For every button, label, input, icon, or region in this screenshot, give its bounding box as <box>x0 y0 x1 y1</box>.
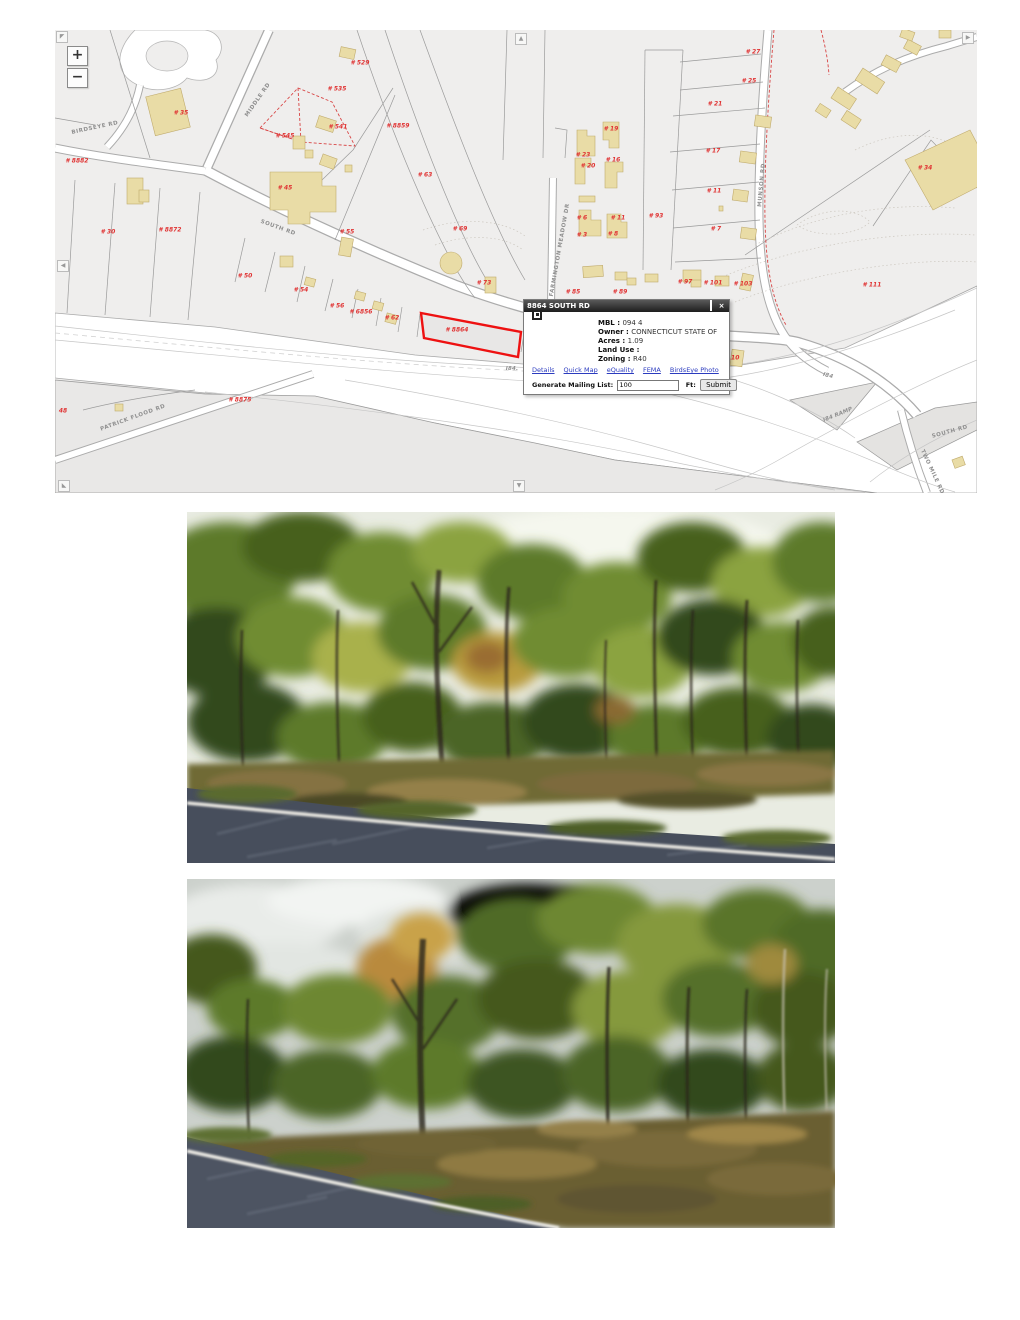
field-label: Land Use : <box>598 346 639 354</box>
pan-right-icon[interactable]: ▶ <box>962 32 974 44</box>
parcel-info-popup: 8864 SOUTH RD × MBL : 094 4 Owner : CONN… <box>523 299 730 395</box>
quick-map-link[interactable]: Quick Map <box>564 366 598 374</box>
details-link[interactable]: Details <box>532 366 555 374</box>
field-label: MBL : <box>598 319 622 327</box>
mailing-list-label: Generate Mailing List: <box>532 381 613 389</box>
pan-top-left-icon[interactable]: ◤ <box>56 31 68 43</box>
parcel-info: MBL : 094 4 Owner : CONNECTICUT STATE OF… <box>598 319 717 364</box>
birdseye-photo-link[interactable]: BirdsEye Photo <box>670 366 719 374</box>
pan-up-icon[interactable]: ▲ <box>515 33 527 45</box>
street-view-photo-bottom <box>187 879 835 1228</box>
popup-links: DetailsQuick MapeQualityFEMABirdsEye Pho… <box>532 366 728 374</box>
submit-button[interactable]: Submit <box>700 379 737 391</box>
field-value: CONNECTICUT STATE OF <box>631 328 717 336</box>
popup-title-bar[interactable]: 8864 SOUTH RD × <box>524 300 729 312</box>
marker-toggle-icon[interactable] <box>532 310 542 320</box>
fema-link[interactable]: FEMA <box>643 366 661 374</box>
field-value: 1.09 <box>628 337 644 345</box>
map-graphics <box>55 30 977 493</box>
zoom-out-button[interactable]: − <box>67 68 88 88</box>
gis-map[interactable]: # 35# 8882# 30# 8872# 529# 535# 541# 545… <box>55 30 977 493</box>
pan-left-icon[interactable]: ◀ <box>57 260 69 272</box>
field-label: Owner : <box>598 328 631 336</box>
field-value: R40 <box>633 355 647 363</box>
field-label: Zoning : <box>598 355 633 363</box>
street-view-photo-top <box>187 512 835 863</box>
pan-bottom-left-icon[interactable]: ◣ <box>58 480 70 492</box>
field-value: 094 4 <box>622 319 642 327</box>
restore-icon[interactable] <box>706 302 715 311</box>
zoom-in-button[interactable]: + <box>67 46 88 66</box>
equality-link[interactable]: eQuality <box>607 366 634 374</box>
close-icon[interactable]: × <box>717 302 726 311</box>
popup-title: 8864 SOUTH RD <box>527 300 704 312</box>
field-label: Acres : <box>598 337 628 345</box>
pan-down-icon[interactable]: ▼ <box>513 480 525 492</box>
page: # 35# 8882# 30# 8872# 529# 535# 541# 545… <box>0 0 1020 1320</box>
zoom-control: + − <box>67 46 89 90</box>
mailing-list-row: Generate Mailing List: Ft: Submit <box>532 379 737 391</box>
mailing-list-distance-input[interactable] <box>617 380 679 391</box>
feet-unit-label: Ft: <box>686 381 696 389</box>
